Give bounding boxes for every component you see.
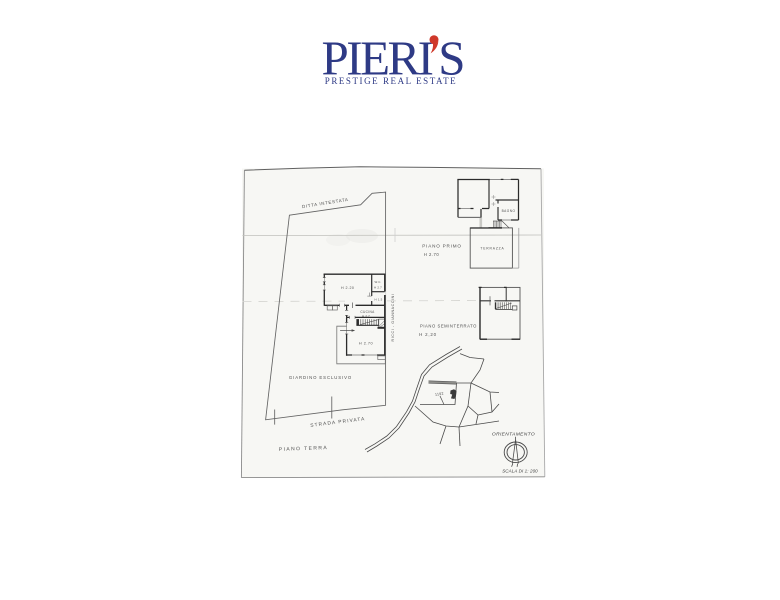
svg-text:ORIENTAMENTO: ORIENTAMENTO <box>492 432 535 438</box>
svg-text:PRESTIGE REAL ESTATE: PRESTIGE REAL ESTATE <box>325 76 457 86</box>
svg-text:GIARDINO ESCLUSIVO: GIARDINO ESCLUSIVO <box>289 375 352 380</box>
svg-text:BAGNO: BAGNO <box>502 209 516 213</box>
svg-text:H 2,20: H 2,20 <box>419 332 437 337</box>
svg-text:H 2.20: H 2.20 <box>341 286 354 290</box>
svg-text:W.C.: W.C. <box>374 280 381 284</box>
svg-text:PIANO PRIMO: PIANO PRIMO <box>422 244 461 249</box>
svg-text:SCALA DI 1: 200: SCALA DI 1: 200 <box>502 468 538 473</box>
svg-text:H 2.70: H 2.70 <box>424 252 440 257</box>
svg-text:TERRAZZA: TERRAZZA <box>480 246 504 250</box>
svg-text:RICCI - GIANNACCINI: RICCI - GIANNACCINI <box>391 294 395 342</box>
svg-text:PIANO SEMINTERRATO: PIANO SEMINTERRATO <box>420 324 477 329</box>
svg-text:H 2.7: H 2.7 <box>374 285 382 289</box>
svg-text:H 1.5: H 1.5 <box>375 297 383 301</box>
svg-text:H 2.70: H 2.70 <box>359 342 373 346</box>
